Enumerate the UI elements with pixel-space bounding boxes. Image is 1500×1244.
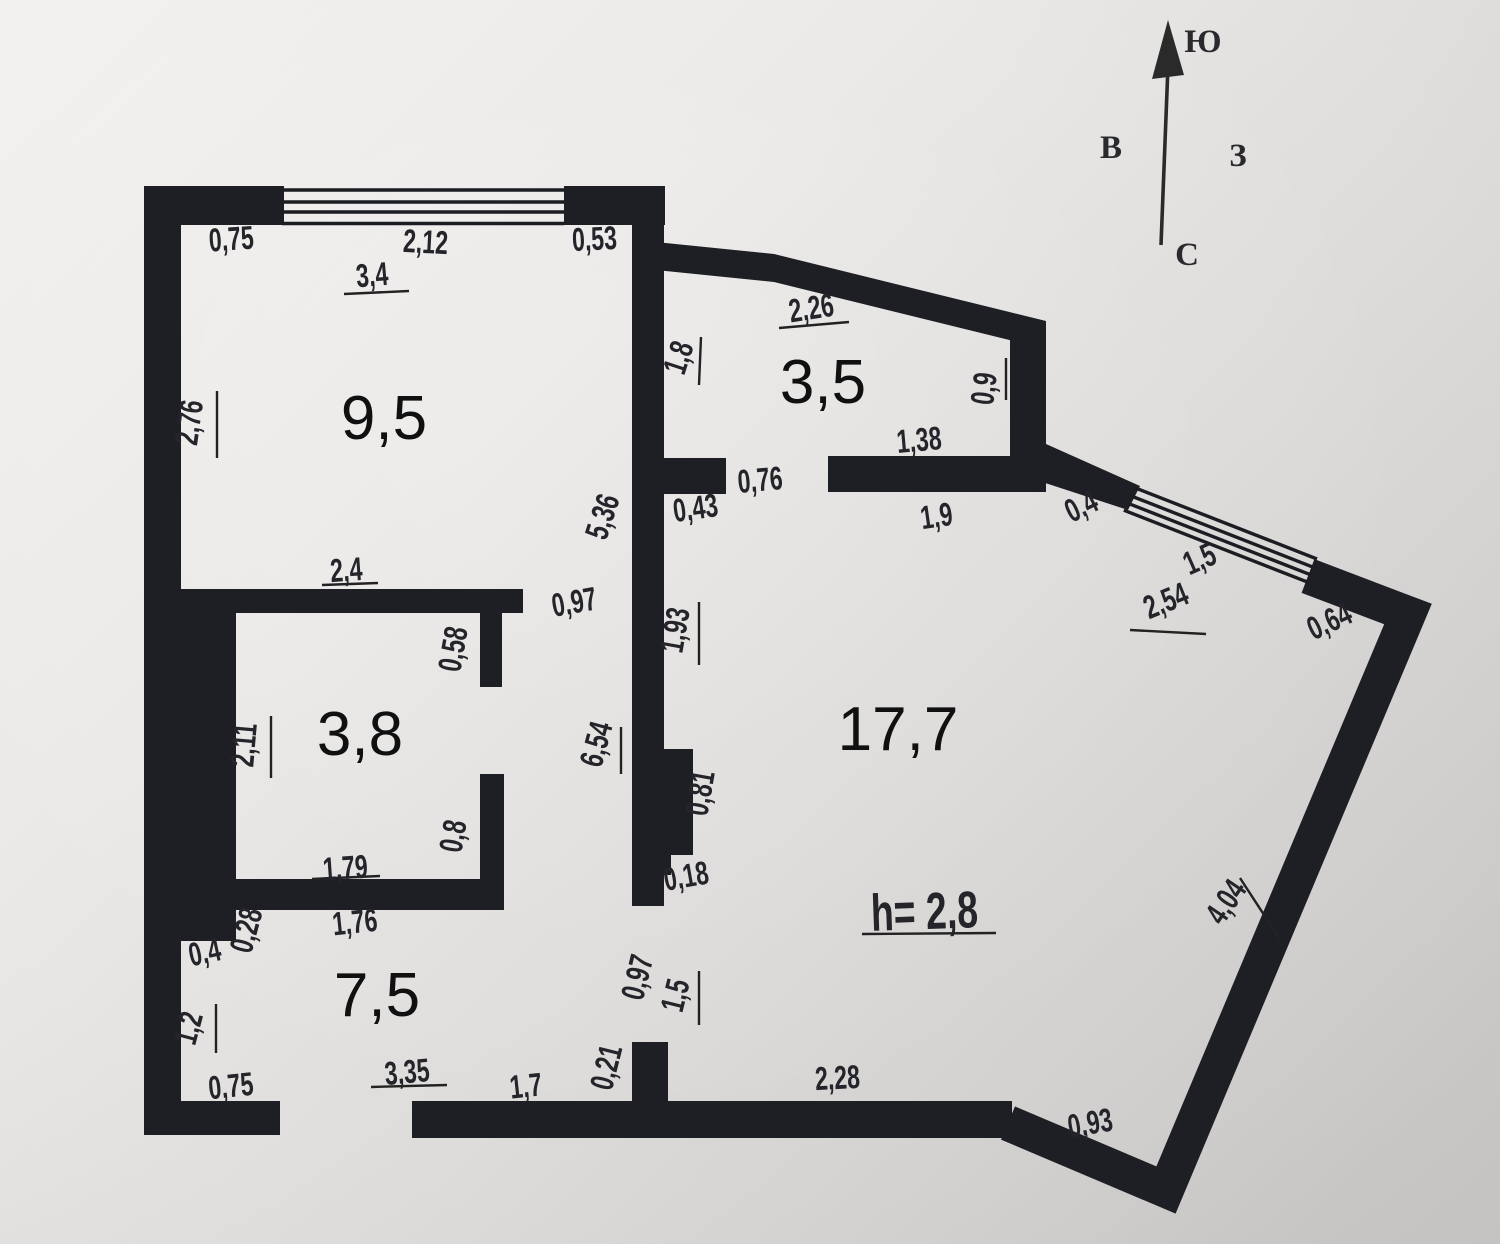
svg-text:7,5: 7,5 [334,961,420,1030]
svg-text:0,93: 0,93 [1065,1102,1116,1146]
svg-text:0,53: 0,53 [571,220,618,259]
svg-text:1,9: 1,9 [918,496,955,537]
svg-text:3,4: 3,4 [354,256,389,296]
svg-text:1,79: 1,79 [322,849,369,889]
svg-text:2,28: 2,28 [814,1059,861,1098]
svg-text:3,35: 3,35 [383,1052,431,1093]
svg-text:1,7: 1,7 [508,1067,544,1107]
svg-text:0,58: 0,58 [432,624,476,675]
svg-text:З: З [1229,138,1246,174]
svg-text:0,76: 0,76 [736,460,784,501]
svg-text:2,12: 2,12 [402,223,449,262]
svg-text:9,5: 9,5 [341,384,427,453]
svg-text:С: С [1175,237,1199,273]
svg-text:1,76: 1,76 [331,902,380,944]
svg-text:2,26: 2,26 [786,287,836,331]
svg-text:2,4: 2,4 [329,551,364,590]
svg-text:0,81: 0,81 [679,768,723,819]
svg-text:1,38: 1,38 [895,420,943,461]
svg-text:В: В [1100,130,1122,166]
svg-text:h= 2,8: h= 2,8 [870,880,979,942]
svg-text:0,43: 0,43 [671,487,721,530]
svg-text:0,8: 0,8 [433,817,475,855]
svg-text:1,93: 1,93 [654,605,698,656]
svg-text:3,5: 3,5 [780,348,866,417]
svg-text:3,8: 3,8 [317,700,403,769]
svg-text:2,76: 2,76 [168,398,211,448]
svg-text:0,97: 0,97 [549,581,600,625]
svg-text:17,7: 17,7 [838,695,959,764]
svg-text:Ю: Ю [1184,24,1221,60]
svg-text:0,75: 0,75 [208,220,256,260]
svg-text:0,9: 0,9 [964,371,1005,407]
svg-text:0,75: 0,75 [207,1066,256,1108]
svg-text:2,11: 2,11 [224,722,265,769]
svg-text:0,18: 0,18 [661,855,712,899]
